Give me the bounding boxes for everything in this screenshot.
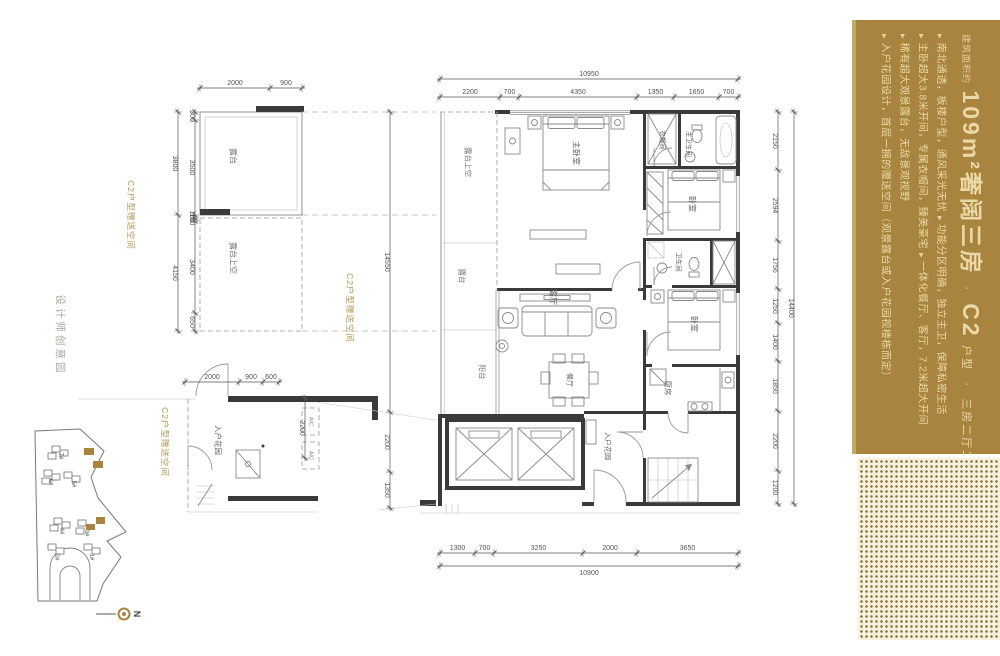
unit-label: 户型 [960, 345, 972, 371]
room-label-strip-terrace: 露台 [458, 269, 468, 284]
dim-left-inner-label: 3500 [188, 160, 195, 176]
page: 2000900109502200700435013501650700130070… [0, 0, 1000, 656]
elevator-shaft [447, 420, 583, 488]
dim-left-long: 1455022001350 [383, 109, 394, 511]
bullet-icon: ▶ [936, 216, 942, 221]
dim-bottom-segments: 1300700325020003650 [437, 545, 741, 557]
dim-left-outer: 38004150 [171, 109, 182, 334]
dim-right-segments-label: 2594 [771, 198, 778, 214]
site-building-3: 3# [83, 530, 89, 537]
dim-bottom-segments-label: 700 [479, 545, 491, 552]
dim-bottom-segments-label: 3250 [531, 545, 547, 552]
master-bedroom-furniture [505, 116, 624, 274]
feature-row: ▶ 入户花园设计，首层一拥的赠送空间（观景露台或入户花园视楼栋而定） [879, 34, 891, 440]
dim-left-long-label: 14550 [383, 252, 390, 272]
info-panel: 建筑面积约 109m²奢阔三房 · C2 户型 · 三房二厅二卫 ▶ 南北通透，… [852, 20, 1000, 454]
bullet-icon: ▶ [918, 253, 924, 258]
dim-annex-top-label: 2000 [204, 374, 220, 381]
feature-row: ▶ 稀有超大观景露台，无敌景观视野 [897, 34, 909, 440]
room-label-balcony: 阳台 [478, 365, 488, 380]
feature-text: 稀有超大观景露台，无敌景观视野 [898, 43, 909, 202]
room-label-entry-garden: 入户花园 [604, 432, 613, 460]
feature-row: ▶ 南北通透，板楼户型，通风采光无忧 ▶ 功能分区明确，独立主卫，保障私密生活 [934, 34, 946, 440]
room-label-terrace-void: 露台上空 [229, 242, 239, 274]
site-building-2: 2# [53, 554, 59, 561]
entry-garden-and-stairs [420, 420, 740, 513]
bath2-and-shaft [648, 241, 735, 284]
separator: · [960, 286, 975, 292]
dim-left-inner-label: 3400 [188, 259, 195, 275]
dim-left-inner-label: 300 [188, 110, 195, 122]
kitchen-fixtures [650, 368, 734, 411]
feature-text: 一体化餐厅、客厅，7.2米超大开间 [917, 261, 928, 425]
room-label-master-bath: 主卫生间 [685, 131, 694, 157]
dim-right-total: 14400 [787, 109, 798, 507]
gold-label-2: C2户型赠送空间 [345, 273, 355, 343]
gold-label-3: C2户型赠送空间 [160, 407, 170, 477]
dim-right-segments-label: 2200 [771, 433, 778, 449]
gold-label-1: C2户型赠送空间 [126, 180, 136, 250]
dim-bottom-segments-label: 1300 [450, 545, 466, 552]
dim-annex-top-label: 900 [245, 374, 257, 381]
dim-right-segments-label: 2150 [771, 133, 778, 149]
dot-pattern [858, 458, 1000, 640]
floor-plan-drawing: 2000900109502200700435013501650700130070… [0, 0, 860, 656]
room-label-bedroom2: 卧室 [688, 196, 698, 212]
site-building-7: 7# [57, 453, 63, 460]
room-label-dining: 餐厅 [566, 373, 575, 387]
site-building-1: 1# [88, 554, 94, 561]
dim-top-segments-label: 4350 [570, 89, 586, 96]
dim-bottom-total: 10900 [437, 562, 741, 577]
bullet-icon: ▶ [918, 34, 924, 39]
annex-drawing [78, 364, 436, 512]
north-label: N [132, 611, 142, 618]
dim-left-inner: 30035001001003400650 [188, 109, 199, 334]
site-plan [35, 429, 126, 601]
panel-title: 建筑面积约 109m²奢阔三房 · C2 户型 · 三房二厅二卫 [956, 34, 990, 440]
dim-bottom-segments-label: 3650 [680, 545, 696, 552]
dim-top-left-label: 900 [280, 80, 292, 87]
feature-text: 南北通透，板楼户型，通风采光无忧 [935, 43, 946, 213]
dim-right-segments: 21502594175612501400185022001200 [771, 109, 782, 507]
dim-right-segments-label: 1200 [771, 480, 778, 496]
dim-top-segments: 2200700435013501650700 [437, 89, 741, 101]
dim-right-segments-label: 1400 [771, 334, 778, 350]
room-label-strip-void: 露台上空 [464, 147, 474, 177]
room-label-cloakroom: 衣帽间 [659, 130, 668, 150]
room-label-master-bedroom: 主卧室 [572, 141, 582, 165]
room-label-terrace: 露台 [229, 148, 239, 164]
unit-code: C2 [958, 303, 984, 338]
room-label-annex-entry-garden: 入户花园 [214, 425, 224, 455]
dim-top-left: 2000900 [197, 80, 305, 92]
layout-spec: 三房二厅二卫 [960, 398, 972, 454]
dim-top-segments-label: 1350 [648, 89, 664, 96]
dim-bottom-segments-label: 2000 [602, 545, 618, 552]
text-labels: 露台露台上空露台上空露台阳台主卧室衣帽间主卫生间卧室卫生间卧室厨房客厅餐厅入户花… [47, 130, 700, 617]
dim-top-segments-label: 2200 [462, 89, 478, 96]
dim-top-total: 10950 [437, 71, 741, 83]
dim-right-segments-label: 1250 [771, 298, 778, 314]
outer-terrace-boxes [200, 106, 436, 331]
feature-text: 主卧超大3.8米开间，专属衣帽间，臻美豪宅 [917, 43, 928, 250]
site-building-4: 4# [58, 528, 64, 535]
dim-top-segments-label: 700 [504, 89, 516, 96]
dim-right-segments-label: 1756 [771, 257, 778, 273]
bullet-icon: ▶ [881, 34, 887, 39]
north-arrow-icon [96, 609, 130, 620]
dim-annex-right: 2200 [298, 395, 309, 461]
dim-top-segments-label: 700 [723, 89, 735, 96]
site-building-5: 5# [70, 481, 76, 488]
room-label-living: 客厅 [549, 289, 559, 305]
room-label-bedroom3: 卧室 [690, 316, 700, 332]
dim-bottom-total-label: 10900 [579, 570, 599, 577]
dim-left-outer-label: 3800 [171, 156, 178, 172]
headline: 109m²奢阔三房 [958, 90, 984, 275]
feature-text: 功能分区明确，独立主卫，保障私密生活 [935, 224, 946, 415]
dim-annex-top: 2000900600 [182, 374, 282, 386]
separator: · [960, 382, 975, 388]
dim-left-long-label: 1350 [383, 482, 390, 498]
dim-left-long-label: 2200 [383, 434, 390, 450]
dim-left-inner-label: 650 [188, 316, 195, 328]
dim-annex-right-label: 2200 [298, 420, 305, 436]
feature-text: 入户花园设计，首层一拥的赠送空间（观景露台或入户花园视楼栋而定） [880, 43, 891, 382]
dim-left-outer-label: 4150 [171, 265, 178, 281]
dim-top-total-label: 10950 [579, 71, 599, 78]
site-building-6: 6# [47, 479, 53, 486]
bullet-icon: ▶ [899, 34, 905, 39]
dim-top-left-label: 2000 [227, 80, 243, 87]
feature-row: ▶ 主卧超大3.8米开间，专属衣帽间，臻美豪宅 ▶ 一体化餐厅、客厅，7.2米超… [916, 34, 928, 440]
dim-top-segments-label: 1650 [689, 89, 705, 96]
dim-left-inner-label: 100 [188, 214, 195, 226]
designer-label: 设计师创意园 [54, 295, 67, 376]
room-label-bath2: 卫生间 [675, 252, 684, 272]
room-label-kitchen: 厨房 [664, 381, 674, 396]
ac-label-2: A/C [308, 451, 314, 460]
dim-right-total-label: 14400 [787, 298, 794, 318]
bullet-icon: ▶ [936, 34, 942, 39]
area-prefix: 建筑面积约 [961, 34, 971, 84]
ac-label-1: A/C [308, 417, 314, 426]
dim-right-segments-label: 1850 [771, 378, 778, 394]
dim-annex-top-label: 600 [265, 374, 277, 381]
